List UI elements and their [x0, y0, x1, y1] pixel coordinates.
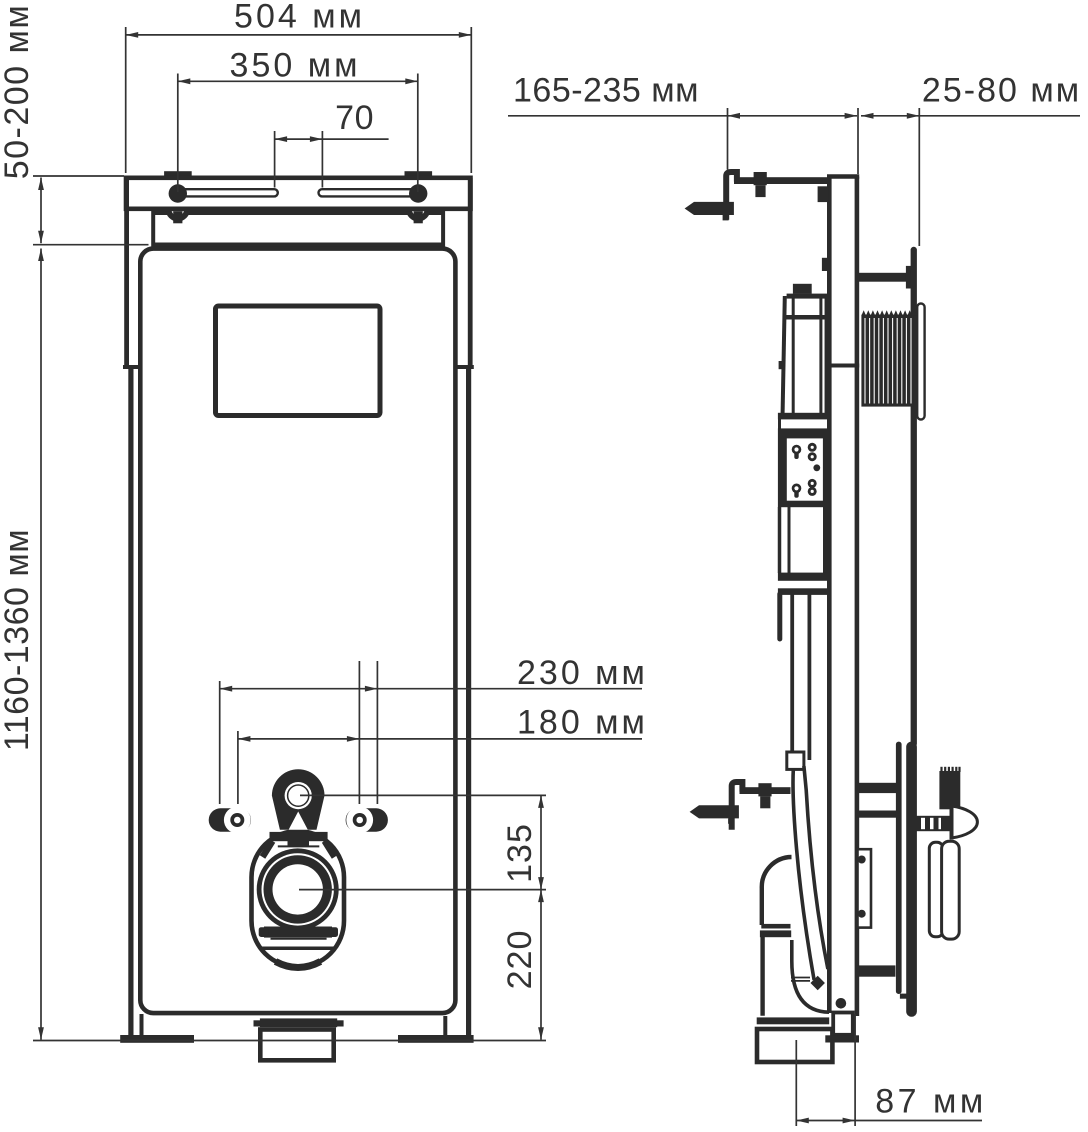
- svg-text:504 мм: 504 мм: [234, 0, 365, 36]
- svg-text:87 мм: 87 мм: [875, 1082, 987, 1120]
- svg-text:230 мм: 230 мм: [517, 654, 648, 692]
- svg-text:220: 220: [501, 930, 539, 990]
- svg-text:70: 70: [335, 99, 374, 137]
- svg-text:350 мм: 350 мм: [230, 46, 361, 84]
- svg-text:1160-1360 мм: 1160-1360 мм: [0, 529, 36, 751]
- svg-text:25-80 мм: 25-80 мм: [922, 71, 1081, 109]
- svg-text:180 мм: 180 мм: [517, 703, 648, 741]
- svg-text:50-200 мм: 50-200 мм: [0, 4, 36, 180]
- svg-text:165-235 мм: 165-235 мм: [513, 71, 699, 109]
- svg-text:135: 135: [501, 823, 539, 883]
